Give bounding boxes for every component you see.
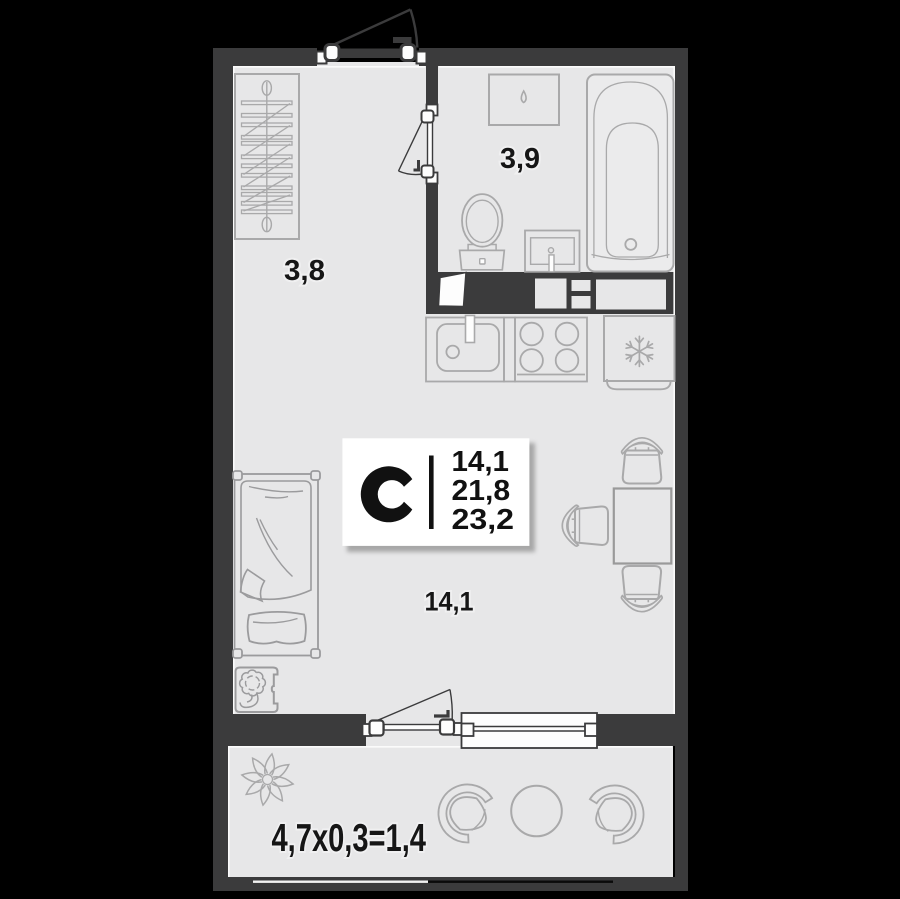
svg-text:4,7x0,3=1,4: 4,7x0,3=1,4: [272, 817, 427, 860]
svg-text:14,1: 14,1: [452, 446, 510, 478]
svg-text:14,1: 14,1: [425, 587, 474, 617]
svg-text:21,8: 21,8: [452, 475, 511, 507]
svg-text:3,9: 3,9: [500, 143, 540, 175]
svg-text:3,8: 3,8: [284, 255, 325, 287]
svg-text:23,2: 23,2: [452, 504, 515, 536]
